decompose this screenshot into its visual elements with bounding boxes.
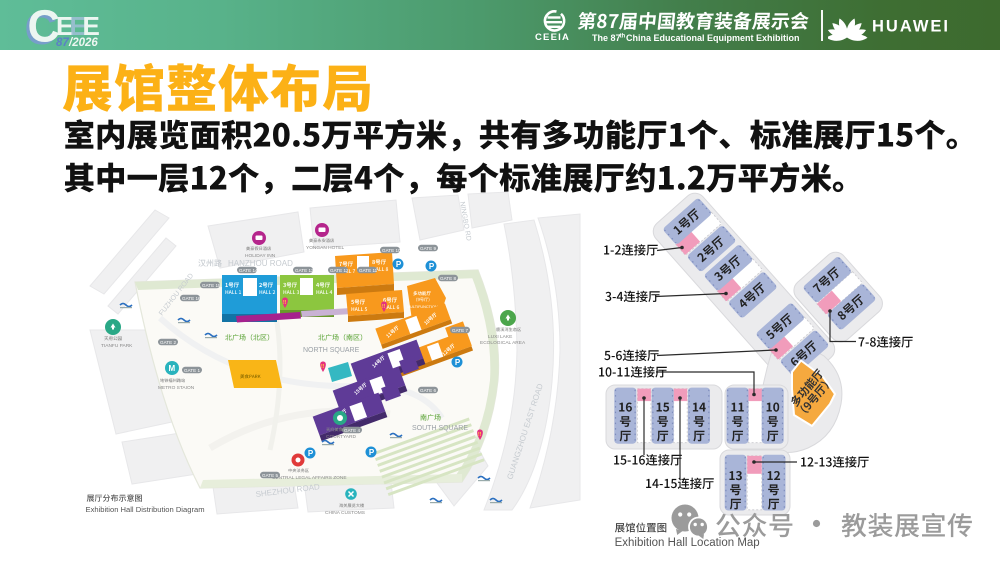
svg-text:GATE 10: GATE 10 — [382, 248, 401, 253]
svg-text:TIANFU PARK: TIANFU PARK — [101, 343, 133, 349]
svg-text:P: P — [308, 449, 314, 458]
svg-text:P: P — [455, 358, 461, 367]
svg-text:GATE 9: GATE 9 — [420, 246, 436, 251]
svg-text:GATE 7: GATE 7 — [452, 328, 468, 333]
svg-text:GATE 12: GATE 12 — [330, 268, 349, 273]
svg-text:China Educational Equipment: China Educational Equipment Exhibition — [626, 33, 800, 43]
svg-text:M: M — [169, 364, 176, 373]
svg-text:HOLIDAY INN: HOLIDAY INN — [245, 253, 276, 259]
svg-text:LUXI LAKE: LUXI LAKE — [488, 334, 512, 340]
svg-text:/2026: /2026 — [68, 37, 98, 49]
svg-text:CEEIA: CEEIA — [535, 32, 570, 43]
svg-text:GATE 13: GATE 13 — [295, 268, 314, 273]
svg-text:COURTYARD: COURTYARD — [326, 434, 356, 440]
svg-text:HUAWEI: HUAWEI — [872, 18, 950, 36]
svg-text:!!: !! — [283, 300, 287, 306]
svg-text:Exhibition Hall Location Map: Exhibition Hall Location Map — [615, 537, 760, 549]
svg-text:GATE 2: GATE 2 — [160, 340, 176, 345]
svg-text:GATE 8: GATE 8 — [440, 276, 456, 281]
svg-text:!!: !! — [382, 304, 386, 310]
svg-text:P: P — [396, 260, 402, 269]
svg-text:CENTRAL LEGAL AFFAIRS ZONE: CENTRAL LEGAL AFFAIRS ZONE — [272, 475, 347, 481]
svg-text:GATE 15: GATE 15 — [202, 283, 221, 288]
svg-text:GATE 14: GATE 14 — [239, 268, 258, 273]
svg-text:GATE 5: GATE 5 — [262, 473, 278, 478]
svg-text:GATE 11: GATE 11 — [359, 268, 378, 273]
svg-text:HANZHOU ROAD: HANZHOU ROAD — [228, 259, 293, 268]
svg-text:YONGAN HOTEL: YONGAN HOTEL — [306, 245, 344, 251]
svg-text:87: 87 — [56, 37, 69, 49]
svg-text:GATE 16: GATE 16 — [182, 296, 201, 301]
svg-text:ECOLOGICAL AREA: ECOLOGICAL AREA — [480, 340, 526, 346]
svg-text:!!: !! — [321, 364, 325, 370]
svg-text:GATE 6: GATE 6 — [420, 388, 436, 393]
svg-text:GATE 1: GATE 1 — [184, 368, 200, 373]
svg-text:!!: !! — [478, 432, 482, 438]
svg-text:P: P — [429, 262, 435, 271]
svg-text:The 87: The 87 — [592, 33, 621, 43]
svg-text:GATE 4: GATE 4 — [344, 428, 360, 433]
svg-text:NORTH SQUARE: NORTH SQUARE — [303, 347, 360, 354]
svg-text:METRO STAION: METRO STAION — [158, 385, 195, 391]
svg-text:SOUTH SQUARE: SOUTH SQUARE — [412, 425, 468, 432]
svg-text:Exhibition Hall Distribution D: Exhibition Hall Distribution Diagram — [86, 505, 205, 514]
svg-text:CHINA CUSTOMS: CHINA CUSTOMS — [325, 510, 365, 516]
svg-text:th: th — [620, 34, 626, 40]
svg-text:P: P — [369, 448, 375, 457]
